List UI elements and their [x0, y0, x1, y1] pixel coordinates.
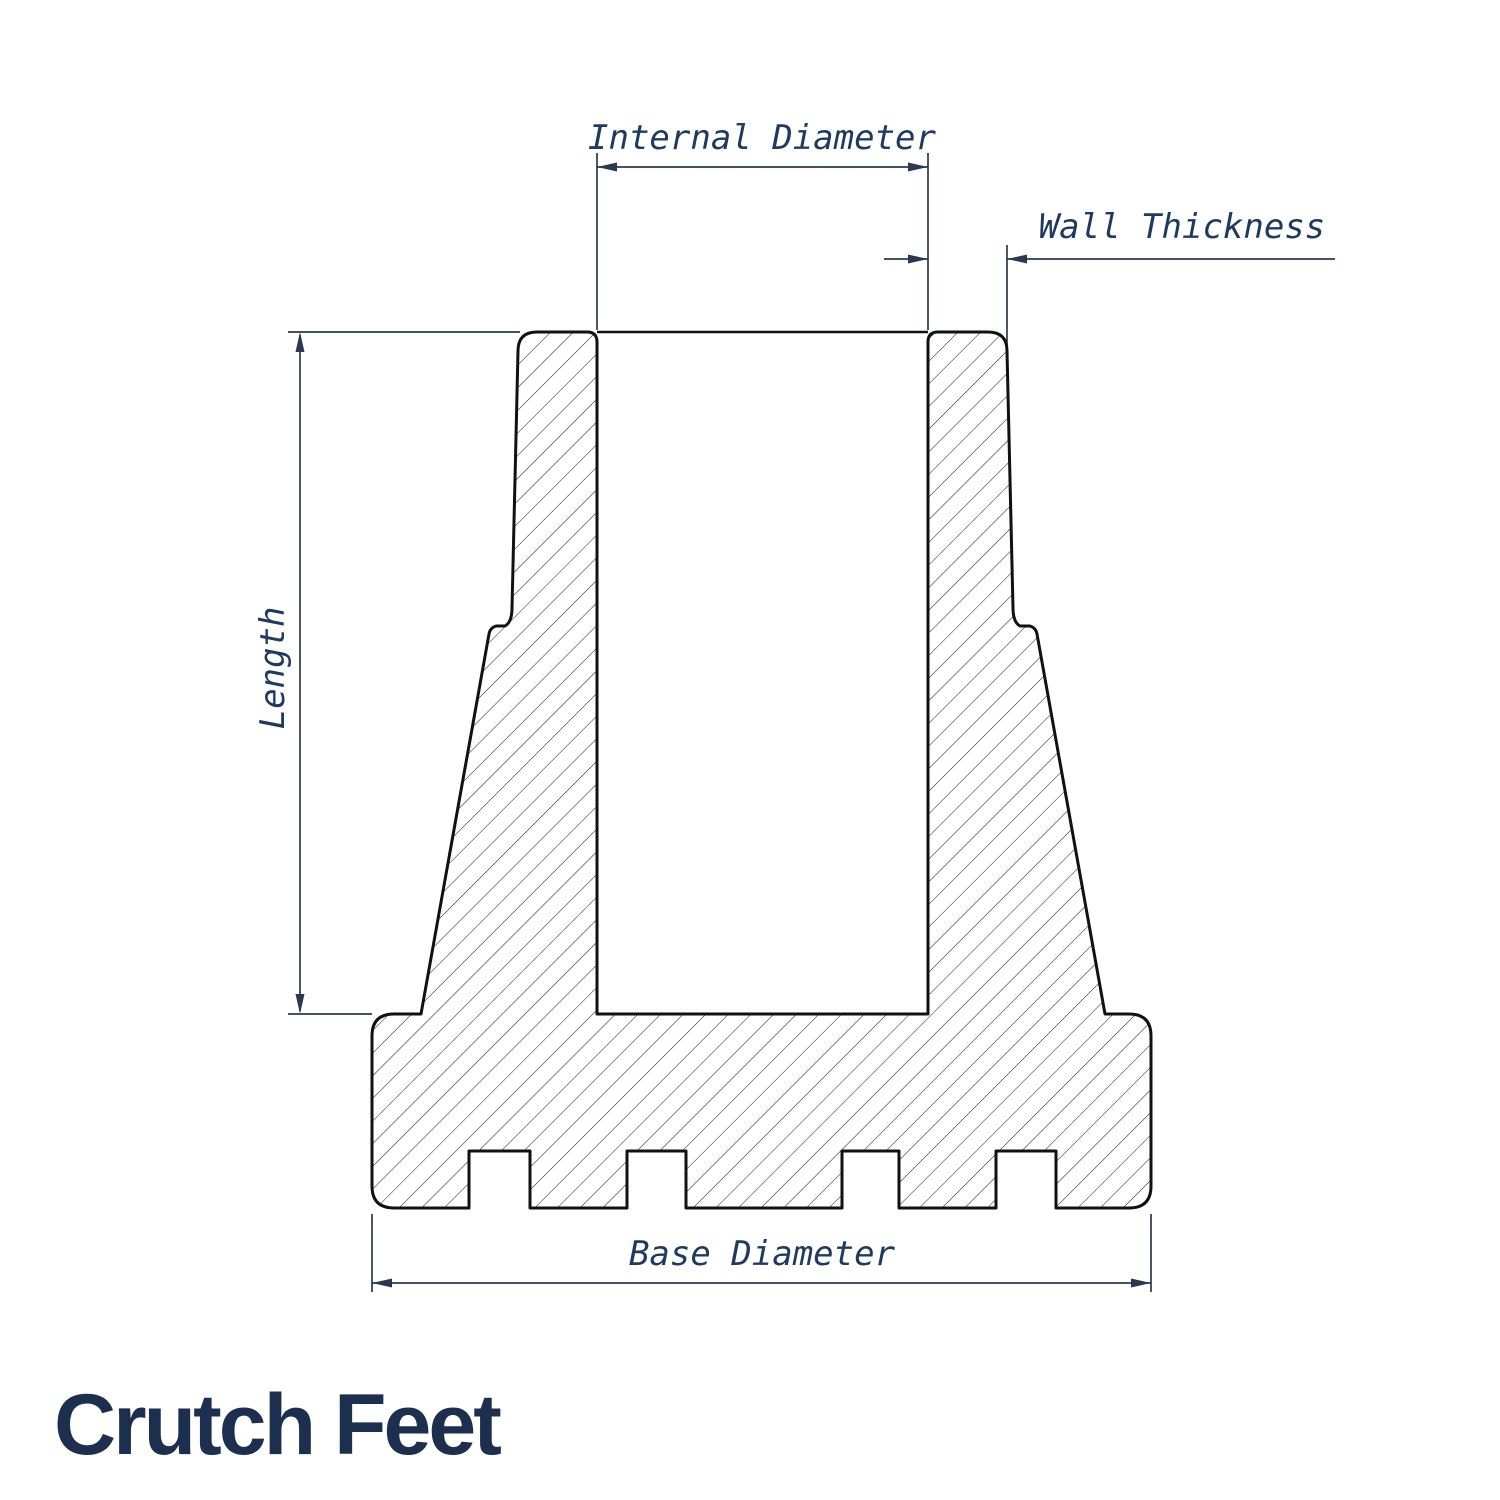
length-label: Length [253, 607, 293, 730]
dimension-base-diameter: Base Diameter [372, 1214, 1151, 1292]
wall-thickness-label: Wall Thickness [1039, 207, 1326, 247]
cross-section-outline [372, 332, 1151, 1208]
arrowhead-icon [1131, 1279, 1151, 1288]
arrowhead-icon [597, 163, 617, 172]
arrowhead-icon [908, 255, 928, 264]
dimension-internal-diameter: Internal Diameter [588, 118, 937, 330]
arrowhead-icon [908, 163, 928, 172]
arrowhead-icon [296, 994, 305, 1014]
arrowhead-icon [296, 332, 305, 352]
page-title: Crutch Feet [54, 1382, 499, 1468]
arrowhead-icon [1007, 255, 1027, 264]
dimension-wall-thickness: Wall Thickness [884, 207, 1335, 348]
technical-drawing: Internal Diameter Wall Thickness Length … [0, 0, 1500, 1500]
internal-diameter-label: Internal Diameter [588, 118, 937, 158]
crutch-foot-section [372, 332, 1151, 1208]
arrowhead-icon [372, 1279, 392, 1288]
base-diameter-label: Base Diameter [629, 1234, 896, 1274]
